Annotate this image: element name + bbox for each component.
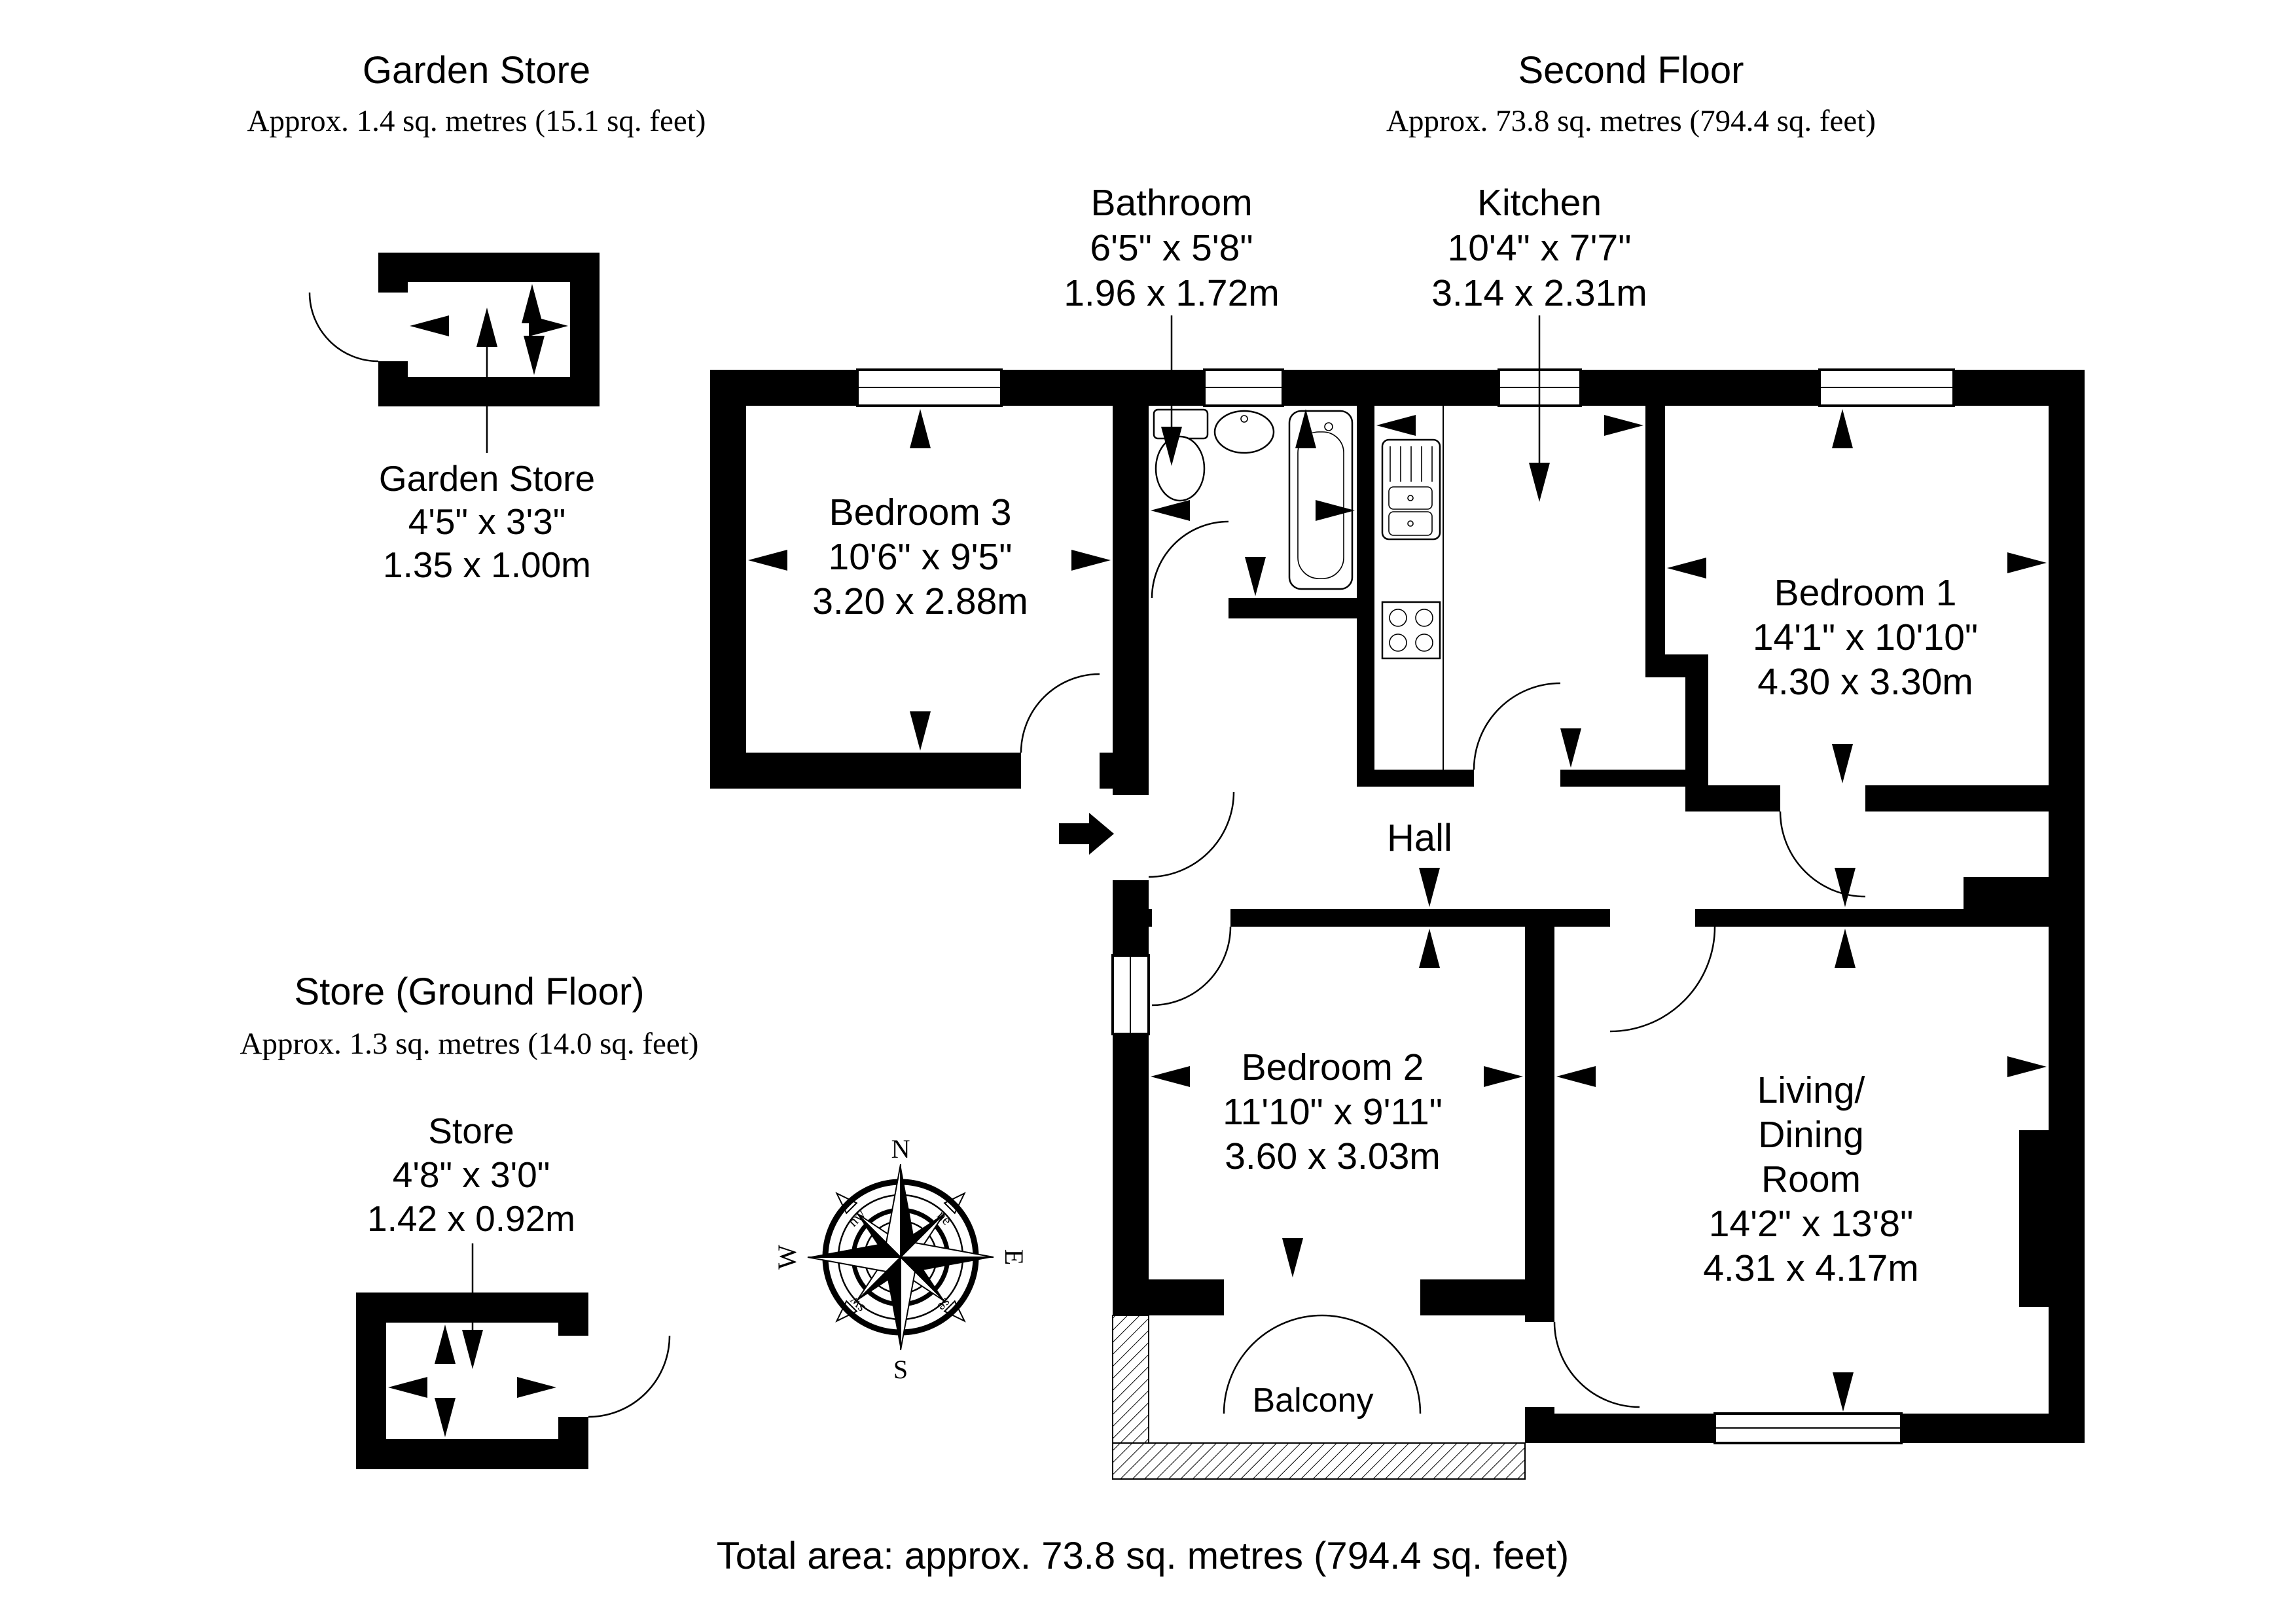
garden-store-plan-label: Garden Store 4'5" x 3'3" 1.35 x 1.00m — [379, 458, 595, 585]
dimension-arrow-right — [529, 315, 568, 336]
garden-store-title: Garden Store — [363, 49, 590, 92]
window-bedroom3 — [857, 370, 1001, 406]
dimension-arrow-down — [1419, 868, 1440, 907]
dimension-arrow-right — [2007, 552, 2047, 573]
dimension-arrow-down — [1833, 1372, 1854, 1412]
balcony-label: Balcony — [1253, 1382, 1374, 1419]
compass-s: S — [893, 1355, 908, 1384]
garden-store-label-name: Garden Store — [379, 458, 595, 499]
door-bathroom — [1152, 522, 1229, 598]
kitchen-imperial: 10'4" x 7'7" — [1448, 227, 1632, 269]
store-ground-subtitle: Approx. 1.3 sq. metres (14.0 sq. feet) — [240, 1027, 699, 1061]
dimension-arrow-up — [435, 1325, 456, 1364]
store-plan-label: Store 4'8" x 3'0" 1.42 x 0.92m — [367, 1111, 575, 1239]
leader-lines — [473, 315, 1539, 1361]
door-kitchen — [1474, 683, 1560, 770]
second-floor-subtitle: Approx. 73.8 sq. metres (794.4 sq. feet) — [1386, 104, 1876, 138]
living-name-1: Living/ — [1757, 1069, 1865, 1111]
store-plan — [356, 1293, 670, 1469]
window-bedroom1 — [1820, 370, 1954, 406]
compass-rose: N S W E nw ne sw se — [772, 1134, 1029, 1384]
store-ground-header: Store (Ground Floor) Approx. 1.3 sq. met… — [240, 971, 699, 1061]
kitchen-metric: 3.14 x 2.31m — [1431, 272, 1647, 314]
living-metric: 4.31 x 4.17m — [1703, 1247, 1919, 1289]
dimension-arrow-left — [1667, 558, 1706, 579]
store-label-metric: 1.42 x 0.92m — [367, 1198, 575, 1239]
dimension-arrow-right — [1071, 550, 1111, 571]
bathroom-metric: 1.96 x 1.72m — [1064, 272, 1280, 314]
dimension-arrow-right — [2007, 1056, 2047, 1077]
door-store — [588, 1336, 670, 1417]
living-name-3: Room — [1761, 1158, 1861, 1200]
dimension-arrow-left — [388, 1377, 427, 1398]
dimension-arrow-down — [1282, 1238, 1303, 1277]
bedroom3-imperial: 10'6" x 9'5" — [829, 536, 1013, 578]
store-label-imperial: 4'8" x 3'0" — [393, 1154, 550, 1195]
dimension-arrow-down — [524, 336, 545, 375]
dimension-arrow-down — [1560, 728, 1581, 768]
total-area-label: Total area: approx. 73.8 sq. metres (794… — [717, 1535, 1569, 1577]
room-label-living: Living/ Dining Room 14'2" x 13'8" 4.31 x… — [1703, 1069, 1919, 1289]
bedroom3-metric: 3.20 x 2.88m — [812, 580, 1028, 622]
bedroom2-metric: 3.60 x 3.03m — [1225, 1135, 1441, 1177]
compass-w: W — [772, 1245, 802, 1270]
dimension-arrow-up — [476, 308, 497, 347]
bedroom1-name: Bedroom 1 — [1774, 572, 1957, 614]
balcony-wall-bottom — [1113, 1443, 1525, 1479]
hall-label: Hall — [1387, 817, 1452, 859]
dimension-arrow-left — [1151, 500, 1190, 521]
garden-store-subtitle: Approx. 1.4 sq. metres (15.1 sq. feet) — [247, 104, 706, 138]
dimension-arrow-down — [1832, 744, 1853, 783]
compass-n: N — [891, 1134, 910, 1164]
bedroom2-imperial: 11'10" x 9'11" — [1223, 1091, 1443, 1133]
kitchen-name: Kitchen — [1477, 182, 1602, 224]
garden-store-label-imperial: 4'5" x 3'3" — [408, 501, 565, 542]
room-label-bedroom1: Bedroom 1 14'1" x 10'10" 4.30 x 3.30m — [1753, 572, 1978, 703]
compass-e: E — [999, 1249, 1029, 1265]
basin-icon — [1215, 411, 1274, 453]
garden-store-plan — [310, 253, 600, 406]
dimension-arrow-left — [410, 315, 449, 336]
store-ground-title: Store (Ground Floor) — [294, 971, 644, 1013]
dimension-arrow-down — [1529, 463, 1550, 502]
bedroom3-name: Bedroom 3 — [829, 491, 1012, 533]
room-label-kitchen: Kitchen 10'4" x 7'7" 3.14 x 2.31m — [1431, 182, 1647, 314]
door-bedroom1 — [1780, 811, 1865, 897]
kitchen-sink-icon — [1382, 440, 1440, 539]
dimension-arrow-down — [910, 711, 931, 751]
door-garden-store — [310, 293, 378, 361]
room-label-bedroom3: Bedroom 3 10'6" x 9'5" 3.20 x 2.88m — [812, 491, 1028, 622]
window-living — [1715, 1414, 1901, 1443]
room-label-bedroom2: Bedroom 2 11'10" x 9'11" 3.60 x 3.03m — [1223, 1046, 1443, 1177]
floorplan-page: Garden Store Approx. 1.4 sq. metres (15.… — [0, 0, 2296, 1623]
door-entrance — [1149, 792, 1234, 877]
dimension-arrow-right — [1484, 1066, 1523, 1087]
dimension-arrow-left — [1556, 1066, 1596, 1087]
window-bedroom2 — [1113, 955, 1149, 1034]
living-name-2: Dining — [1758, 1114, 1864, 1156]
dimension-arrow-left — [748, 550, 787, 571]
dimension-arrow-down — [462, 1330, 483, 1369]
kitchen-fixtures — [1382, 406, 1443, 770]
bedroom2-name: Bedroom 2 — [1242, 1046, 1424, 1088]
living-imperial: 14'2" x 13'8" — [1709, 1203, 1914, 1245]
door-living — [1610, 927, 1715, 1031]
door-living-balcony — [1554, 1322, 1640, 1407]
bathroom-imperial: 6'5" x 5'8" — [1090, 227, 1253, 269]
toilet-icon — [1154, 410, 1208, 501]
garden-store-label-metric: 1.35 x 1.00m — [383, 544, 591, 585]
floorplan-canvas: Garden Store Approx. 1.4 sq. metres (15.… — [0, 0, 2296, 1623]
dimension-arrow-down — [1835, 868, 1856, 907]
bedroom1-metric: 4.30 x 3.30m — [1757, 661, 1973, 703]
dimension-arrow-left — [1376, 415, 1416, 436]
door-bedroom2 — [1152, 927, 1230, 1005]
dimension-arrow-up — [1419, 929, 1440, 968]
door-bedroom3 — [1021, 674, 1100, 753]
entrance-arrow-icon — [1059, 813, 1114, 855]
bathroom-name: Bathroom — [1090, 182, 1252, 224]
dimension-arrow-up — [1835, 929, 1856, 968]
store-label-name: Store — [428, 1111, 514, 1151]
window-bathroom — [1204, 370, 1283, 406]
dimension-arrow-left — [1151, 1066, 1190, 1087]
dimension-arrow-up — [1832, 409, 1853, 448]
second-floor-header: Second Floor Approx. 73.8 sq. metres (79… — [1386, 49, 1876, 138]
room-label-bathroom: Bathroom 6'5" x 5'8" 1.96 x 1.72m — [1064, 182, 1280, 314]
hob-icon — [1382, 602, 1440, 658]
second-floor-title: Second Floor — [1518, 49, 1744, 92]
dimension-arrow-down — [1245, 557, 1266, 596]
dimension-arrow-down — [435, 1398, 456, 1437]
garden-store-header: Garden Store Approx. 1.4 sq. metres (15.… — [247, 49, 706, 138]
dimension-arrow-right — [1604, 415, 1643, 436]
dimension-arrow-right — [517, 1377, 556, 1398]
dimension-arrow-up — [910, 409, 931, 448]
bedroom1-imperial: 14'1" x 10'10" — [1753, 616, 1978, 658]
